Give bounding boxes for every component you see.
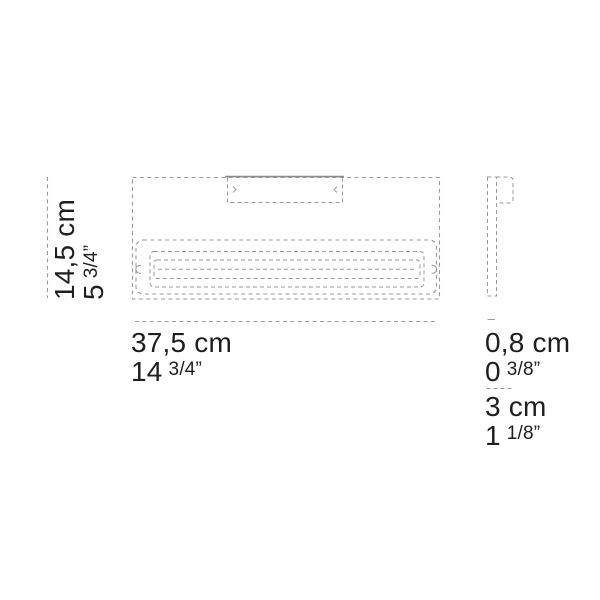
diffuser-outer-frame: [136, 240, 437, 294]
height-cm-text: 14,5 cm: [49, 199, 80, 300]
mount-depth-imperial-value: 11/8”: [485, 420, 546, 449]
mount-depth-inch-whole-text: 1: [485, 420, 501, 451]
width-inch-whole-text: 14: [131, 356, 163, 387]
depth-dimension-label: 0,8 cm 03/8”: [485, 329, 570, 385]
height-inch-whole-text: 5: [78, 284, 109, 300]
drawing-canvas: [0, 0, 600, 600]
width-imperial-value: 143/4”: [131, 356, 232, 385]
depth-inch-whole-text: 0: [485, 356, 501, 387]
diffuser-clip-right: [432, 265, 437, 273]
depth-metric-value: 0,8 cm: [485, 329, 570, 356]
depth-cm-text: 0,8 cm: [485, 327, 570, 358]
mount-clip-left-mark: [233, 187, 236, 193]
mount-depth-inch-frac-text: 1/8”: [507, 423, 541, 444]
width-inch-frac-text: 3/4”: [169, 359, 203, 380]
side-view-body-outline: [488, 177, 497, 296]
side-view-mount-outline: [497, 177, 514, 203]
diffuser-clip-left: [136, 265, 141, 273]
height-inch-frac-text: 3/4”: [81, 245, 102, 279]
front-view-outline: [133, 178, 440, 300]
depth-inch-frac-text: 3/8”: [507, 359, 541, 380]
height-metric-value: 14,5 cm: [51, 199, 78, 300]
height-imperial-value: 53/4”: [78, 199, 107, 300]
height-dimension-label: 14,5 cm 53/4”: [51, 199, 107, 300]
width-cm-text: 37,5 cm: [131, 327, 232, 358]
mount-depth-cm-text: 3 cm: [485, 391, 546, 422]
width-dimension-label: 37,5 cm 143/4”: [131, 329, 232, 385]
width-metric-value: 37,5 cm: [131, 329, 232, 356]
dimension-drawing: 14,5 cm 53/4” 37,5 cm 143/4” 0,8 cm 03/8…: [0, 0, 600, 600]
mount-plate-outline: [228, 178, 343, 203]
mount-depth-metric-value: 3 cm: [485, 393, 546, 420]
depth-imperial-value: 03/8”: [485, 356, 570, 385]
mount-clip-right-mark: [334, 187, 337, 193]
mount-depth-dimension-label: 3 cm 11/8”: [485, 393, 546, 449]
